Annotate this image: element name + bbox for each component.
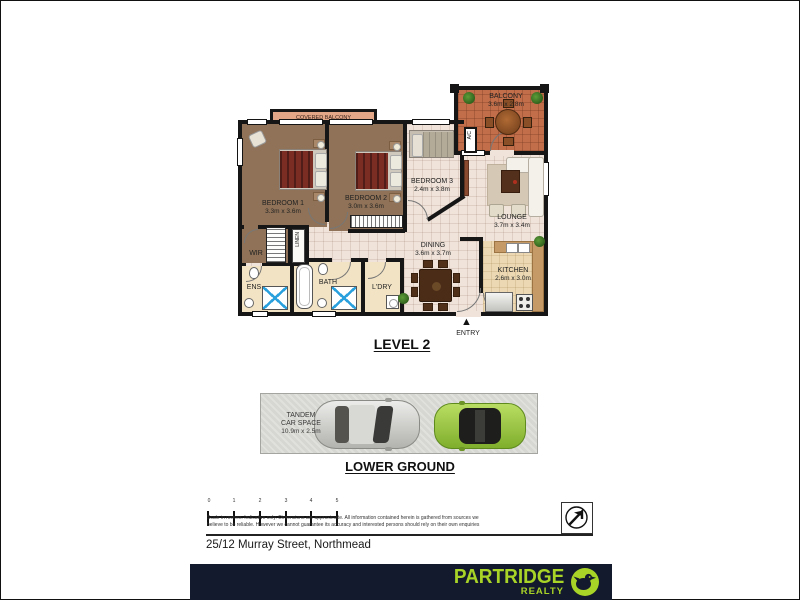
balcony-chair xyxy=(503,137,514,146)
ens-label: ENS xyxy=(243,284,265,292)
bedroom2-label: BEDROOM 2 3.0m x 3.6m xyxy=(330,195,402,211)
bedroom3-label: BEDROOM 3 2.4m x 3.8m xyxy=(396,178,468,194)
room-dims: 3.7m x 3.4m xyxy=(476,222,548,230)
dining-chair xyxy=(411,287,418,297)
dining-chair xyxy=(423,260,433,268)
dining-chair xyxy=(438,303,448,311)
bath-shower xyxy=(331,286,357,310)
room-dims: 2.4m x 3.8m xyxy=(396,186,468,194)
room-dims: 3.0m x 3.6m xyxy=(330,203,402,211)
balcony-wall-right xyxy=(544,86,548,155)
room-dims: 2.6m x 3.0m xyxy=(477,275,549,283)
lower-ground-heading: LOWER GROUND xyxy=(330,459,470,474)
lounge-sofa-right xyxy=(528,157,544,217)
balcony-label: BALCONY 3.6m x 2.8m xyxy=(470,93,542,109)
kitchen-stove xyxy=(516,294,533,311)
bed1 xyxy=(279,149,327,190)
room-dims: 3.6m x 3.7m xyxy=(397,250,469,258)
ac-label: A/C xyxy=(467,131,473,139)
room-name: BEDROOM 1 xyxy=(247,200,319,208)
lounge-plant xyxy=(534,236,545,247)
wall-bed2-bottom xyxy=(348,229,405,233)
floorplan-page: LINEN xyxy=(0,0,800,600)
car-windshield xyxy=(372,406,393,443)
ac-unit: A/C xyxy=(464,127,477,153)
car-mirror xyxy=(385,398,392,402)
partridge-bird-icon xyxy=(571,568,599,596)
bath-toilet xyxy=(318,263,328,275)
car-roof-stripe xyxy=(475,410,485,442)
address: 25/12 Murray Street, Northmead xyxy=(206,539,371,551)
wir-label: WIR xyxy=(244,250,268,258)
footer: 0 1 2 3 4 5 Scale in metres. Indicative … xyxy=(0,490,800,600)
room-name: LOUNGE xyxy=(476,214,548,222)
room-name: BEDROOM 2 xyxy=(330,195,402,203)
wall-bed2-right xyxy=(403,122,407,232)
linen-closet: LINEN xyxy=(292,229,305,263)
bed3-pillow xyxy=(412,134,423,157)
kitchen-sink xyxy=(506,243,518,253)
wall-kitchen-left xyxy=(479,237,483,293)
brand-bird-badge xyxy=(571,568,599,596)
disclaimer-line2: believe to be reliable. However we canno… xyxy=(207,522,507,529)
entry-arrow-icon: ▲ xyxy=(461,317,472,328)
car-rear-glass xyxy=(335,406,349,443)
kitchen-label: KITCHEN 2.6m x 3.0m xyxy=(477,267,549,283)
dining-plant xyxy=(398,293,409,304)
footer-rule xyxy=(206,534,593,536)
room-dims: 3.6m x 2.8m xyxy=(470,101,542,109)
dining-chair xyxy=(423,303,433,311)
wall-ldry-right xyxy=(400,258,404,316)
car-mirror xyxy=(385,447,392,451)
green-car xyxy=(434,403,526,449)
compass-box xyxy=(561,502,593,534)
ens-basin xyxy=(244,298,254,308)
bed1-blanket xyxy=(280,151,313,188)
bed1-nightstand-top xyxy=(313,139,325,148)
carspace-line3: 10.9m x 2.5m xyxy=(265,428,337,436)
dining-chair xyxy=(453,287,460,297)
balcony-post-left xyxy=(450,84,459,93)
wir-wardrobe xyxy=(266,227,286,263)
level2-heading: LEVEL 2 xyxy=(342,336,462,352)
scale-number: 1 xyxy=(230,498,238,504)
bed2 xyxy=(355,151,402,191)
balcony-chair xyxy=(485,117,494,128)
covered-balcony-wall-top xyxy=(270,109,377,112)
lounge-tv-unit xyxy=(501,170,520,193)
wall-ens-bath xyxy=(290,262,294,316)
room-name: DINING xyxy=(397,242,469,250)
ldry-label: L'DRY xyxy=(366,284,398,292)
linen-label: LINEN xyxy=(295,232,301,247)
scale-number: 4 xyxy=(307,498,315,504)
wall-bottom xyxy=(238,312,548,316)
balcony-wall-left xyxy=(454,86,458,155)
room-dims: 3.3m x 3.6m xyxy=(247,208,319,216)
covered-balcony-wall-right xyxy=(374,109,377,122)
balcony-post-right xyxy=(540,84,549,93)
lower-ground-plan: TANDEM CAR SPACE 10.9m x 2.5m LOWER GROU… xyxy=(0,360,800,490)
north-arrow-icon xyxy=(562,503,591,532)
wall-bath-top-b xyxy=(351,258,368,262)
dining-chair xyxy=(411,273,418,283)
wall-ens-top-a xyxy=(238,263,246,266)
ens-toilet xyxy=(249,267,259,279)
bedroom1-label: BEDROOM 1 3.3m x 3.6m xyxy=(247,200,319,216)
carpark-area: TANDEM CAR SPACE 10.9m x 2.5m xyxy=(260,393,538,454)
balcony-table xyxy=(495,109,521,135)
balcony-wall-top xyxy=(454,86,548,90)
window-bottom-ens xyxy=(252,311,268,317)
scale-number: 3 xyxy=(282,498,290,504)
dining-label: DINING 3.6m x 3.7m xyxy=(397,242,469,258)
wall-bath-ldry xyxy=(361,258,365,316)
window-bottom-bath xyxy=(312,311,336,317)
room-name: KITCHEN xyxy=(477,267,549,275)
dining-chair xyxy=(453,273,460,283)
car-roof xyxy=(349,405,375,444)
level2-plan: LINEN xyxy=(0,0,800,360)
room-name: BALCONY xyxy=(470,93,542,101)
kitchen-fridge xyxy=(485,292,513,312)
disclaimer-line1: Scale in metres. Indicative only. Dimens… xyxy=(207,515,507,522)
brand-sub: REALTY xyxy=(448,587,564,597)
balcony-chair xyxy=(523,117,532,128)
bed3 xyxy=(409,130,454,158)
covered-balcony-label: COVERED BALCONY xyxy=(273,114,374,122)
window-bedroom1-left xyxy=(237,138,243,166)
room-name: BEDROOM 3 xyxy=(396,178,468,186)
bathtub xyxy=(296,264,313,309)
brand-name: PARTRIDGE xyxy=(454,567,564,587)
bedroom2-wardrobe xyxy=(350,215,403,228)
car-mirror xyxy=(459,447,465,451)
bed3-blanket xyxy=(423,132,454,157)
ens-shower xyxy=(262,286,288,310)
scale-number: 2 xyxy=(256,498,264,504)
bath-basin xyxy=(317,298,327,308)
dining-chair xyxy=(438,260,448,268)
wall-bed1-bottom-a xyxy=(238,225,244,229)
bed1-pillow-top xyxy=(315,153,327,169)
window-top-left xyxy=(247,119,267,125)
window-bedroom3 xyxy=(412,119,450,125)
carspace-line1: TANDEM xyxy=(265,412,337,420)
car-mirror xyxy=(459,401,465,405)
scale-number: 0 xyxy=(205,498,213,504)
bed2-blanket xyxy=(356,153,388,189)
brand-text: PARTRIDGE REALTY xyxy=(448,567,564,597)
disclaimer: Scale in metres. Indicative only. Dimens… xyxy=(207,515,507,528)
bed1-pillow-bottom xyxy=(315,171,327,187)
kitchen-sink xyxy=(518,243,530,253)
bath-label: BATH xyxy=(314,279,342,287)
dining-table xyxy=(419,269,452,302)
lounge-label: LOUNGE 3.7m x 3.4m xyxy=(476,214,548,230)
scale-number: 5 xyxy=(333,498,341,504)
carspace-label: TANDEM CAR SPACE 10.9m x 2.5m xyxy=(265,412,337,436)
carspace-line2: CAR SPACE xyxy=(265,420,337,428)
brand-bar: PARTRIDGE REALTY xyxy=(190,564,612,600)
bed2-pillow-top xyxy=(390,155,402,170)
bed2-nightstand-top xyxy=(389,141,401,150)
